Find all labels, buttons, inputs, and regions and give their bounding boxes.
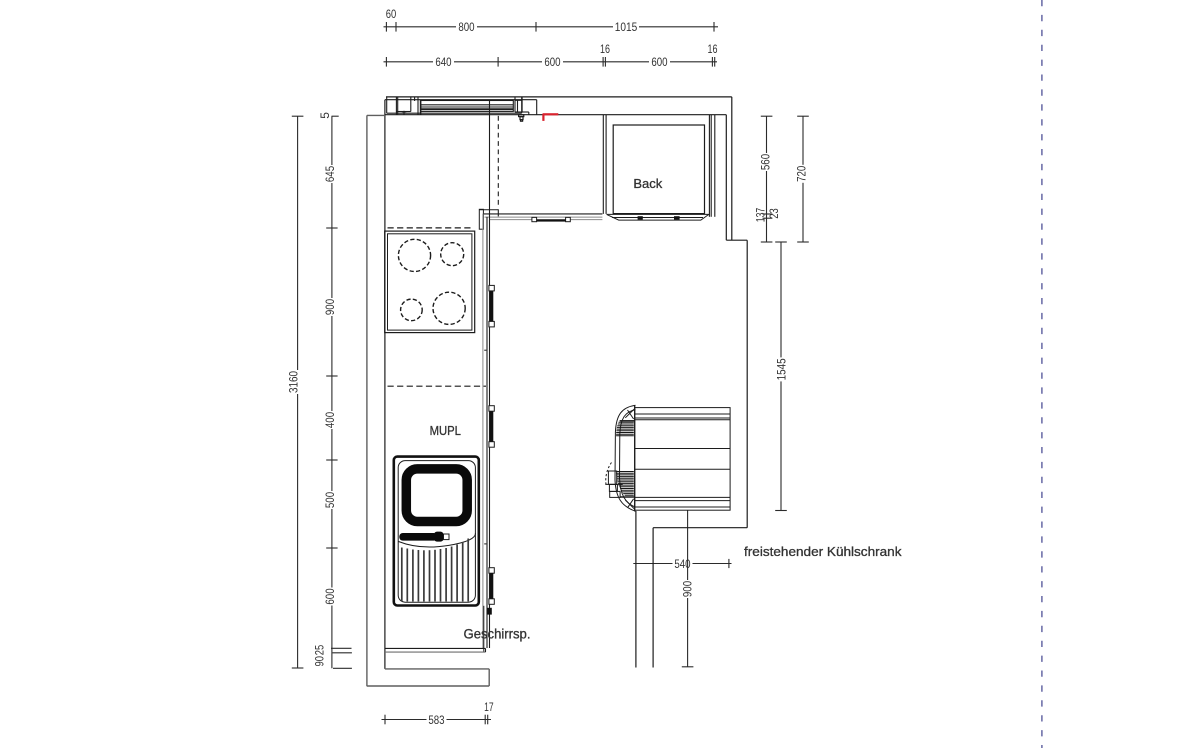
svg-text:freistehender Kühlschrank: freistehender Kühlschrank — [744, 544, 902, 559]
svg-text:560: 560 — [759, 154, 773, 170]
svg-text:800: 800 — [458, 20, 474, 34]
svg-text:600: 600 — [544, 55, 560, 69]
svg-text:16: 16 — [600, 42, 610, 56]
svg-text:540: 540 — [674, 557, 690, 571]
svg-text:583: 583 — [428, 713, 444, 727]
svg-text:MUPL: MUPL — [430, 424, 461, 438]
svg-text:16: 16 — [708, 42, 718, 56]
svg-text:Geschirrsp.: Geschirrsp. — [464, 627, 531, 642]
svg-text:900: 900 — [681, 581, 695, 597]
svg-text:640: 640 — [435, 55, 451, 69]
svg-text:17: 17 — [484, 700, 494, 714]
svg-text:23: 23 — [767, 208, 781, 219]
svg-text:500: 500 — [323, 492, 337, 508]
svg-text:645: 645 — [323, 166, 337, 182]
svg-text:3160: 3160 — [287, 371, 301, 393]
svg-text:900: 900 — [323, 299, 337, 315]
svg-text:400: 400 — [323, 412, 337, 428]
svg-text:25: 25 — [312, 645, 326, 656]
svg-text:600: 600 — [651, 55, 667, 69]
svg-text:137: 137 — [754, 208, 768, 223]
svg-text:1545: 1545 — [775, 358, 789, 380]
svg-text:Back: Back — [633, 176, 662, 191]
svg-text:5: 5 — [318, 112, 332, 119]
svg-text:720: 720 — [795, 165, 809, 181]
svg-text:60: 60 — [386, 7, 397, 21]
svg-text:1015: 1015 — [615, 20, 638, 34]
svg-text:600: 600 — [323, 588, 337, 604]
svg-text:90: 90 — [312, 656, 326, 667]
